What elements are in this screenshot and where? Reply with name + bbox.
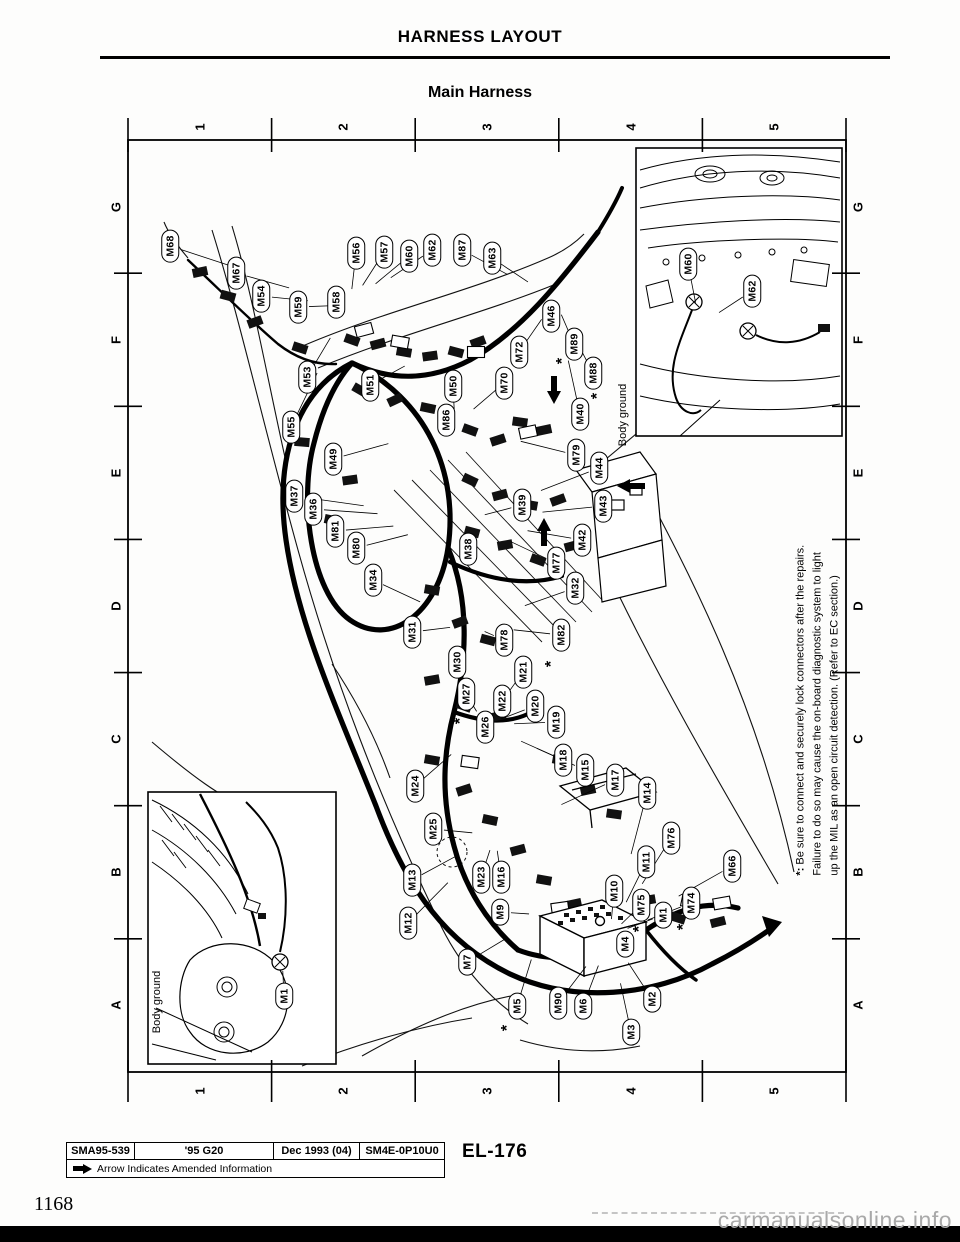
connector-label-M19: M19 [547,705,565,738]
amended-arrow-icon [73,1164,92,1174]
connector-label-M40: M40 [571,397,589,430]
connector-label-M58: M58 [327,285,345,318]
grid-row-label-left-C: C [109,734,124,743]
grid-row-label-left-E: E [109,469,124,478]
grid-row-label-left-G: G [109,202,124,212]
amended-info-arrow-up [537,516,551,546]
grid-col-label-bottom-4: 4 [623,1087,638,1094]
grid-col-label-bottom-2: 2 [336,1087,351,1094]
connector-label-M3: M3 [622,1018,640,1045]
connector-label-M56: M56 [347,236,365,269]
note-line: *:Be sure to connect and securely lock c… [792,464,809,876]
grid-col-label-bottom-5: 5 [767,1087,782,1094]
connector-label-M87: M87 [453,233,471,266]
connector-label-M27: M27 [457,677,475,710]
grid-row-label-left-D: D [109,601,124,610]
page-code: EL-176 [462,1141,527,1163]
grid-row-label-left-A: A [109,1001,124,1010]
grid-col-label-top-2: 2 [336,123,351,130]
grid-row-label-right-A: A [851,1001,866,1010]
grid-row-label-right-G: G [851,202,866,212]
connector-label-M60: M60 [400,239,418,272]
connector-label-M80: M80 [347,531,365,564]
connector-label-M20: M20 [526,689,544,722]
grid-row-label-right-E: E [851,469,866,478]
amended-info-arrow-down [547,376,561,406]
footer-cell-code: SM4E-0P10U0 [360,1143,444,1159]
connector-label-M88: M88 [584,356,602,389]
connector-label-M4: M4 [616,930,634,957]
connector-label-M79: M79 [567,438,585,471]
book-page-number: 1168 [34,1193,73,1216]
note-line: Failure to do so may cause the on-board … [809,464,826,876]
connector-label-M34: M34 [364,563,382,596]
grid-col-label-top-1: 1 [192,123,207,130]
connector-label-M51: M51 [361,368,379,401]
grid-row-label-right-F: F [851,336,866,344]
connector-label-M42: M42 [573,523,591,556]
asterisk-mark-M74: * [675,924,693,930]
connector-label-M15: M15 [576,753,594,786]
connector-label-M66: M66 [723,849,741,882]
connector-label-M39: M39 [513,488,531,521]
connector-label-M76: M76 [662,821,680,854]
footer-row-amended: Arrow Indicates Amended Information [67,1159,444,1177]
grid-col-label-bottom-3: 3 [480,1087,495,1094]
connector-label-M24: M24 [406,769,424,802]
footer-cell-model: '95 G20 [135,1143,274,1159]
connector-label-M2: M2 [643,985,661,1012]
connector-label-M67: M67 [227,256,245,289]
connector-label-M62-inset-engine: M62 [743,274,761,307]
connector-label-M59: M59 [289,290,307,323]
connector-label-M75: M75 [632,888,650,921]
note-marker: *: [794,868,806,876]
connector-label-M38: M38 [459,532,477,565]
connector-label-M43: M43 [594,489,612,522]
watermark: carmanualsonline.info [640,1207,952,1234]
connector-label-M57: M57 [375,235,393,268]
body-ground-caption-1: Body ground [151,971,163,1033]
connector-label-M21: M21 [514,655,532,688]
body-ground-caption-0: Body ground [617,384,629,446]
connector-label-M5: M5 [508,992,526,1019]
connector-label-M30: M30 [448,645,466,678]
connector-label-M22: M22 [493,684,511,717]
connector-label-M90: M90 [549,986,567,1019]
connector-label-M14: M14 [638,776,656,809]
connector-label-M11: M11 [637,846,655,879]
connector-label-M49: M49 [324,442,342,475]
connector-label-M74: M74 [682,886,700,919]
grid-row-label-left-F: F [109,336,124,344]
connector-label-M9: M9 [491,898,509,925]
connector-label-M7: M7 [458,948,476,975]
grid-row-label-left-B: B [109,868,124,877]
connector-label-M53: M53 [298,360,316,393]
connector-label-M32: M32 [566,571,584,604]
connector-label-M12: M12 [399,906,417,939]
asterisk-note: *:Be sure to connect and securely lock c… [792,464,843,876]
connector-label-M25: M25 [424,812,442,845]
connector-label-M37: M37 [285,479,303,512]
connector-label-M89: M89 [565,327,583,360]
connector-label-M26: M26 [476,710,494,743]
amended-note: Arrow Indicates Amended Information [97,1163,272,1175]
asterisk-mark-M75: * [631,926,649,932]
grid-col-label-top-5: 5 [767,123,782,130]
footer-row-codes: SMA95-539 '95 G20 Dec 1993 (04) SM4E-0P1… [67,1143,444,1159]
label-overlay: *:Be sure to connect and securely lock c… [0,0,960,1242]
connector-label-M70: M70 [495,366,513,399]
grid-col-label-top-3: 3 [480,123,495,130]
connector-label-M10: M10 [605,874,623,907]
asterisk-mark-M88: * [589,393,607,399]
connector-label-M54: M54 [252,279,270,312]
connector-label-M23: M23 [472,860,490,893]
connector-label-M81: M81 [326,514,344,547]
connector-label-M17: M17 [606,763,624,796]
footer-cell-publication: SMA95-539 [67,1143,135,1159]
connector-label-M60-inset-engine: M60 [679,247,697,280]
asterisk-mark-M89: * [554,358,572,364]
connector-label-M31: M31 [403,615,421,648]
grid-col-label-top-4: 4 [623,123,638,130]
connector-label-M68: M68 [161,229,179,262]
connector-label-M46: M46 [542,299,560,332]
footer-reference-table: SMA95-539 '95 G20 Dec 1993 (04) SM4E-0P1… [66,1142,445,1178]
footer-cell-date: Dec 1993 (04) [274,1143,360,1159]
note-line: up the MIL as an open circuit detection.… [827,464,844,876]
connector-label-M6: M6 [574,992,592,1019]
asterisk-mark-M5: * [499,1025,517,1031]
connector-label-M36: M36 [304,492,322,525]
connector-label-M55: M55 [282,410,300,443]
connector-label-M62: M62 [423,233,441,266]
connector-label-M16: M16 [492,860,510,893]
connector-label-M50: M50 [444,369,462,402]
connector-label-M1-inset-strut: M1 [275,982,293,1009]
connector-label-M13: M13 [403,863,421,896]
grid-row-label-right-B: B [851,868,866,877]
connector-label-M77: M77 [547,546,565,579]
connector-label-M18: M18 [554,743,572,776]
connector-label-M1: M1 [654,901,672,928]
connector-label-M72: M72 [510,335,528,368]
asterisk-mark-M27: * [452,718,470,724]
connector-label-M86: M86 [437,403,455,436]
grid-row-label-right-D: D [851,601,866,610]
asterisk-mark-M82: * [543,661,561,667]
grid-col-label-bottom-1: 1 [192,1087,207,1094]
manual-page: HARNESS LAYOUT Main Harness [0,0,960,1242]
connector-label-M44: M44 [590,451,608,484]
connector-label-M63: M63 [483,241,501,274]
amended-info-arrow-left [615,479,645,493]
connector-label-M82: M82 [552,618,570,651]
grid-row-label-right-C: C [851,734,866,743]
connector-label-M78: M78 [495,623,513,656]
